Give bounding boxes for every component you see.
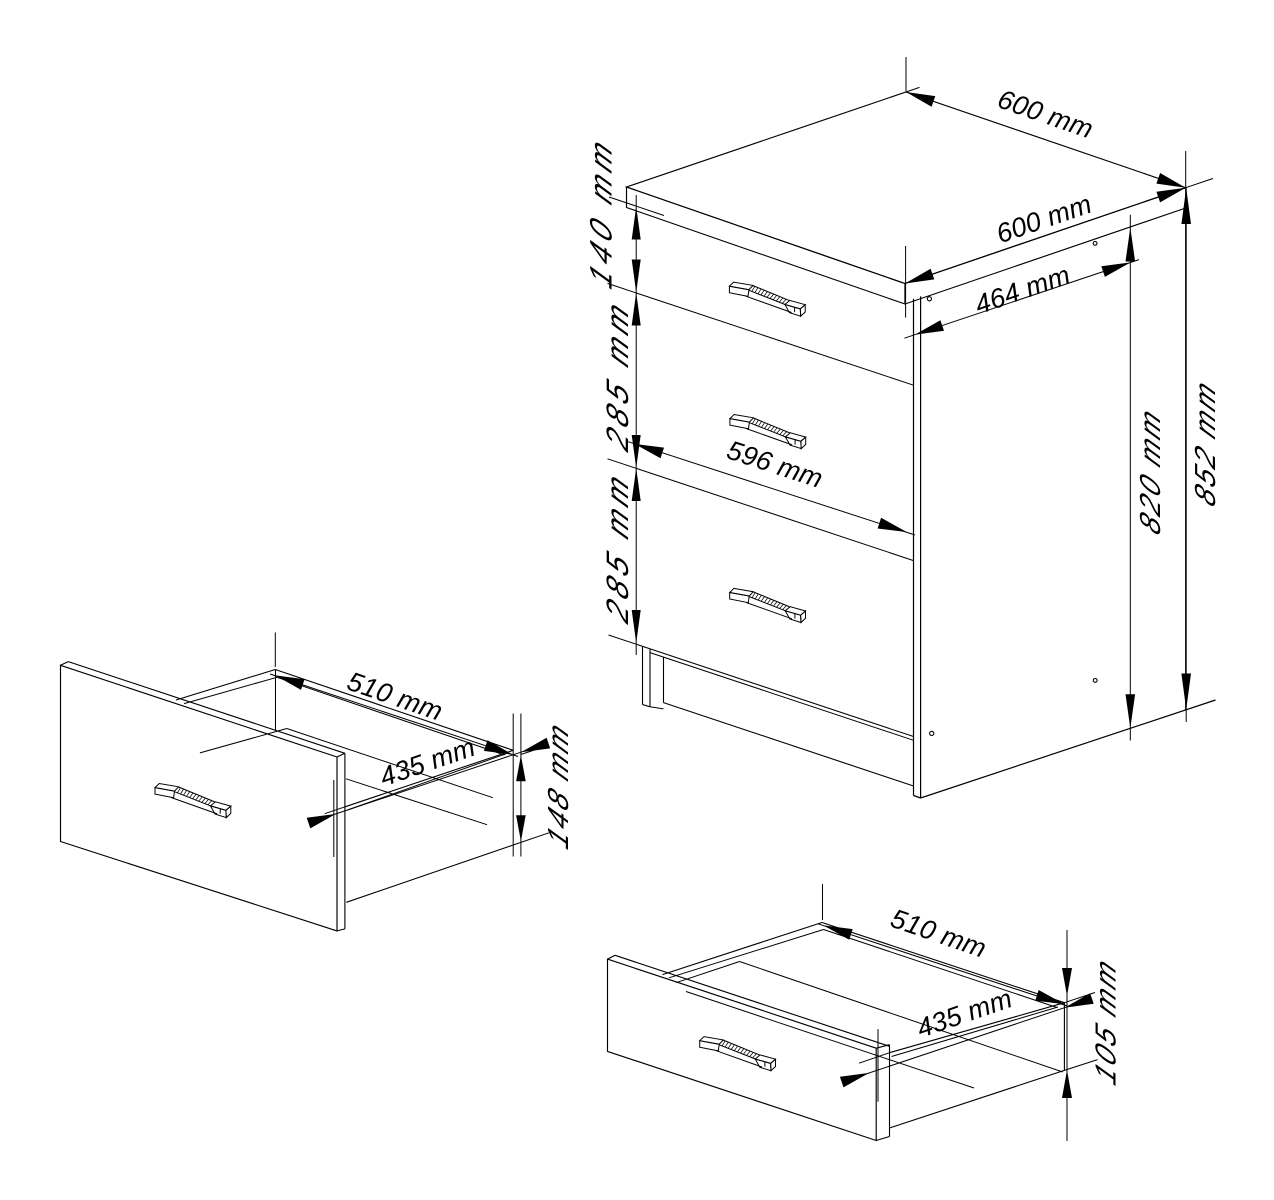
svg-text:140 mm: 140 mm — [584, 128, 619, 294]
svg-text:820 mm: 820 mm — [1134, 400, 1167, 540]
svg-text:148 mm: 148 mm — [542, 714, 575, 854]
svg-text:105 mm: 105 mm — [1089, 950, 1122, 1090]
svg-text:285 mm: 285 mm — [601, 291, 636, 458]
svg-text:852 mm: 852 mm — [1189, 372, 1222, 512]
svg-text:285 mm: 285 mm — [601, 463, 636, 630]
